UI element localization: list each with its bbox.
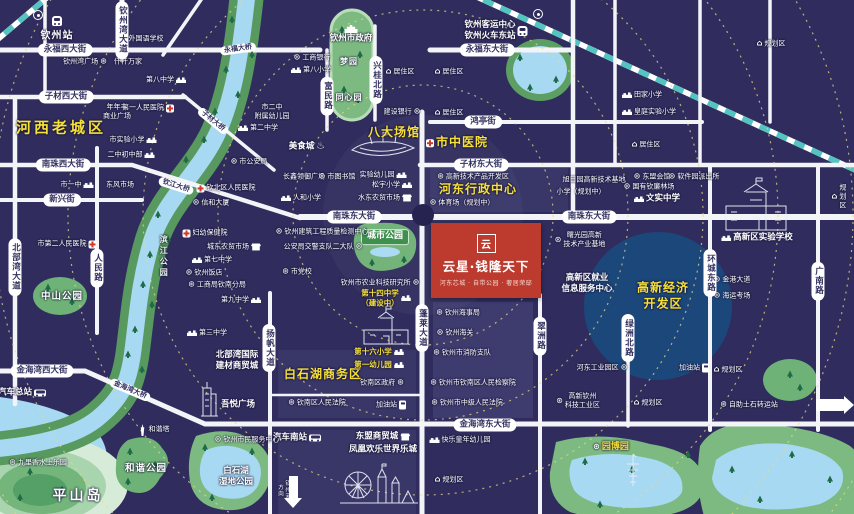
- hexie-tower-label: 和谐塔: [139, 424, 170, 436]
- house-icon: [832, 192, 838, 201]
- meishicheng-label: 美食城: [289, 141, 325, 152]
- star-icon: [193, 198, 200, 207]
- nanzhu-west-street-pill: 南珠西大街: [36, 158, 91, 171]
- house-icon: [386, 67, 392, 76]
- procuratorate-label-text: 钦州市钦南区人民检察院: [439, 378, 516, 387]
- yongfu-bridge-label-text: 永福大桥: [224, 43, 253, 56]
- house-icon: [634, 398, 640, 407]
- gaoxin-employment-center-label-text: 高新区就业 信息服务中心: [561, 273, 612, 295]
- shiyizhong-label-text: 市一中: [61, 180, 82, 189]
- qinzhou-station-label: 钦州站: [41, 30, 74, 43]
- no1-kindergarten-label-text: 第一幼儿园: [354, 360, 392, 370]
- gongshang-bank-label: 工商银行: [294, 53, 331, 62]
- agri-research-label: 钦州市农业科技研究所: [341, 278, 420, 287]
- cross-icon: [166, 104, 174, 112]
- qinlian-forest-farm-label: 国有钦廉林场: [624, 182, 675, 191]
- no2-peoples-hospital-label-text: 市第二人民医院: [38, 239, 87, 248]
- gongshang-bureau-label: 工商局钦南分局: [188, 280, 246, 289]
- star-icon: [397, 378, 404, 387]
- school-icon: [187, 330, 197, 336]
- qinzhou-east-station-label: 钦州客运中心 钦州火车东站: [464, 20, 527, 42]
- jinhaiwan-bridge-label-text: 金海湾大桥: [112, 379, 148, 401]
- guangnan-road-pill-text: 广南路: [812, 267, 823, 296]
- wenshi-middle-school-label-text: 文实中学: [646, 193, 680, 204]
- maternity-hospital-label-text: 妇幼保健院: [193, 228, 228, 237]
- hexi-old-town-label: 河西老城区: [16, 118, 106, 138]
- school-icon: [394, 349, 404, 355]
- qinjiang-bridge-label: 钦江大桥: [157, 176, 194, 196]
- qinnan-government-label-text: 钦南区政府: [360, 378, 395, 387]
- gas-station-label-b-text: 加油站: [679, 363, 700, 372]
- city-police-label: 市公安局: [231, 157, 268, 166]
- project-tagline: 河东芯城 · 自带公园 · 奢居荣邸: [440, 278, 532, 287]
- star-icon: [414, 107, 421, 116]
- school-icon: [402, 182, 412, 188]
- gas-station-label-a-text: 加油站: [376, 400, 397, 409]
- hedong-admin-center-label-text: 河东行政中心: [439, 182, 517, 198]
- star-icon: [556, 396, 563, 405]
- school-icon: [634, 196, 644, 202]
- no2-middle-school-label: 第二中学: [238, 123, 278, 132]
- yangfan-avenue-pill-text: 扬帆大道: [263, 329, 274, 367]
- star-icon: [437, 172, 444, 181]
- gaoxin-product-zone-label-text: 高新技术产品开发区: [446, 172, 509, 181]
- no3-middle-school-label-text: 第三中学: [199, 328, 227, 337]
- no14-middle-school-label: 第十四中学 （建设中）: [361, 288, 411, 308]
- star-icon: [593, 442, 600, 454]
- house-icon: [757, 39, 763, 48]
- qinnan-court-label: 钦南区人民法院: [288, 398, 346, 407]
- jinhaiwan-west-street-pill: 金海湾西大街: [10, 364, 73, 377]
- jingang-avenue-label: 金港大道: [714, 275, 751, 284]
- renhe-primary-label-text: 人和小学: [293, 193, 321, 202]
- no2-middle-kindergarten-label-text: 市二中 附属幼儿园: [255, 103, 290, 121]
- gov-building-icon-label: [345, 25, 358, 33]
- cross-icon: [197, 184, 205, 192]
- cross-icon: [89, 240, 97, 248]
- school-icon: [721, 235, 731, 241]
- maritime-bureau-label: 钦州海事局: [436, 308, 480, 317]
- zicai-east-street-pill: 子材东大街: [454, 158, 509, 171]
- yongfu-east-street-pill: 永福东大街: [460, 43, 515, 56]
- gaoxin-econ-zone-label-text: 高新经济 开发区: [637, 280, 689, 311]
- fire-brigade-label: 钦州市消防支队: [433, 348, 491, 357]
- fire-brigade-label-text: 钦州市消防支队: [442, 348, 491, 357]
- wuyue-plaza-label: 吾悦广场: [221, 399, 255, 410]
- chengshi-park-label-text: 城市公园: [367, 231, 403, 243]
- construction-quality-center-label-text: 钦州建筑工程质量检测中心: [284, 227, 368, 236]
- metro-icon-west-label: [33, 10, 43, 20]
- pingshan-island-label: 平山岛: [53, 487, 104, 505]
- guihuaqu-label-tr: 规划区: [832, 183, 847, 210]
- project-card: 云 云星·钱隆天下 河东芯城 · 自带公园 · 奢居荣邸: [431, 223, 541, 298]
- yongfu-bridge-label: 永福大桥: [220, 42, 257, 56]
- zicai-west-street-pill-text: 子材西大街: [45, 91, 88, 102]
- cuizhou-road-pill-text: 翠洲路: [534, 322, 545, 351]
- gas-icon: [399, 401, 406, 410]
- transfer-station-label-text: 自助土石转运站: [729, 400, 778, 409]
- zicai-west-street-pill: 子材西大街: [39, 90, 94, 103]
- baishihu-business-district-label-text: 白石湖商务区: [284, 367, 362, 383]
- hongting-street-pill: 鸿亭街: [464, 115, 502, 128]
- agri-research-label-text: 钦州市农业科技研究所: [341, 278, 411, 287]
- star-icon: [413, 278, 420, 287]
- songyu-primary-label-text: 松宇小学: [372, 180, 400, 189]
- xinggui-north-road-pill: 兴桂北路: [369, 56, 382, 104]
- fenghuang-world-label: 凤凰欢乐世界乐城: [349, 444, 417, 455]
- guangnan-road-pill: 广南路: [811, 262, 824, 301]
- star-icon: [188, 280, 195, 289]
- yuanboyuan-label: 园博园: [593, 442, 629, 454]
- hexi-old-town-label-text: 河西老城区: [16, 118, 106, 138]
- metro-icon: [33, 10, 43, 20]
- counties-direction-arrow-icon: [816, 399, 844, 411]
- intermediate-court-label: 钦州市中级人民法院: [431, 398, 503, 407]
- school-icon: [291, 67, 301, 73]
- meishicheng-label-text: 美食城: [289, 141, 315, 152]
- zhongshan-park-label-text: 中山公园: [41, 291, 83, 303]
- shi-shiyan-primary-label-text: 市实验小学: [110, 135, 145, 144]
- binjiang-park-label: 滨江公园: [158, 235, 168, 279]
- cuizhou-road-pill: 翠洲路: [533, 317, 546, 356]
- juzhuqu-label-tr: 居住区: [632, 140, 661, 149]
- badachangguan-label-text: 八大场馆: [368, 125, 420, 141]
- yongfu-west-street-pill-text: 永福西大街: [44, 44, 87, 55]
- jinhaiwan-east-street-pill: 金海湾东大街: [453, 418, 516, 431]
- erzhong-junior-label: 二中初中部: [108, 150, 155, 159]
- gas-station-label-a: 加油站: [376, 400, 406, 409]
- zicai-bridge-label: 子材大桥: [196, 106, 230, 136]
- star-icon: [288, 398, 295, 407]
- jinhaiwan-bridge-label: 金海湾大桥: [108, 377, 151, 402]
- school-icon: [281, 195, 291, 201]
- train-icon: [52, 16, 62, 26]
- qianwanjia-label: 仟仟万家: [114, 57, 142, 66]
- hexie-park-label-text: 和谐公园: [125, 463, 167, 475]
- xinxing-street-pill: 新兴街: [43, 193, 81, 206]
- nanzhu-east-street-pill-east-text: 南珠东大街: [568, 211, 611, 222]
- guihuaqu-label-b1: 规划区: [634, 398, 663, 407]
- shiyan-kindergarten-label-text: 实验幼儿园: [360, 170, 395, 179]
- guihuaqu-label-t-text: 规划区: [764, 39, 785, 48]
- market-icon: [251, 244, 261, 251]
- gaoxin-employment-center-label: 高新区就业 信息服务中心: [561, 273, 612, 295]
- penglai-avenue-pill-text: 蓬莱大道: [416, 309, 427, 347]
- school-icon: [147, 137, 157, 143]
- zicai-bridge-label-text: 子材大桥: [199, 109, 226, 134]
- hexie-tower-label-text: 和谐塔: [149, 425, 170, 434]
- school-icon: [430, 437, 440, 443]
- zicai-east-street-pill-text: 子材东大街: [460, 159, 503, 170]
- metro-icon-east-label: [533, 9, 543, 19]
- no8-primary-school-label-text: 第八小学: [303, 65, 331, 74]
- school-icon: [192, 257, 202, 263]
- qinzhou-hotel-label: 钦州饭店: [186, 268, 223, 277]
- dongmeng-huiguan-label-text: 东盟会馆: [642, 172, 670, 181]
- star-icon: [430, 378, 437, 387]
- tower-icon: [139, 424, 147, 436]
- nanzhu-east-street-pill-east: 南珠东大街: [562, 210, 617, 223]
- yongfu-east-street-pill-text: 永福东大街: [466, 44, 509, 55]
- chengdong-market-label-text: 城东农贸市场: [207, 242, 249, 251]
- gongshang-bank-label-text: 工商银行: [302, 53, 330, 62]
- fumin-road-pill-text: 富民路: [321, 82, 332, 111]
- customs-label-text: 钦州海关: [445, 328, 473, 337]
- qinzhou-government-label-text: 钦州市政府: [330, 33, 373, 44]
- renmin-road-pill-text: 人民路: [91, 254, 102, 283]
- kuaile-kindergarten-label-text: 快乐童年幼儿园: [442, 435, 491, 444]
- procuratorate-label: 钦州市钦南区人民检察院: [430, 378, 516, 387]
- tongxinyuan-label-text: 同心园: [336, 93, 363, 103]
- guihuaqu-label-t: 规划区: [757, 39, 786, 48]
- no9-middle-school-label-text: 第九中学: [221, 295, 249, 304]
- gaoxin-product-zone-label: 高新技术产品开发区: [437, 172, 509, 181]
- juzhuqu-label-tr-text: 居住区: [639, 140, 660, 149]
- huancheng-east-road-pill-text: 环城东路: [704, 254, 715, 292]
- primary-school-planned-label: 小学（规划中）: [557, 187, 606, 196]
- city-party-school-label-text: 市党校: [291, 267, 312, 276]
- transfer-station-label: 自助土石转运站: [720, 400, 778, 409]
- hongting-street-pill-text: 鸿亭街: [470, 116, 496, 127]
- school-icon: [176, 77, 186, 83]
- penglai-avenue-pill: 蓬莱大道: [415, 304, 428, 352]
- star-icon: [555, 235, 562, 244]
- mengyuan-label: 梦园: [340, 57, 358, 67]
- citizen-service-center-label-text: 钦州市民服务中心: [223, 435, 279, 444]
- lvzhou-north-road-pill: 绿洲北路: [621, 314, 634, 362]
- star-icon: [436, 308, 443, 317]
- dongfeng-market-label-text: 东风市场: [106, 180, 134, 189]
- guihuaqu-label-b2-text: 规划区: [721, 365, 742, 374]
- baishihu-wetland-park-label-text: 白石湖 湿地公园: [219, 466, 253, 488]
- qinzhou-government-label: 钦州市政府: [330, 33, 373, 44]
- beibuwan-intl-mall-label-text: 北部湾国际 建材商贸城: [216, 350, 259, 372]
- qinbei-hospital-label: 钦北区人民医院: [197, 183, 256, 192]
- star-icon: [282, 267, 289, 276]
- tianjia-primary-label-text: 田家小学: [634, 90, 662, 99]
- port-direction-arrow-icon: [289, 476, 298, 498]
- xuri-hitech-base-label-text: 旭日园高新技术基地: [563, 175, 626, 184]
- bus-main-station-label: 汽车总站: [0, 387, 46, 398]
- city-party-school-label: 市党校: [282, 267, 312, 276]
- qinnan-government-label: 钦南区政府: [360, 378, 404, 387]
- star-icon: [294, 53, 301, 62]
- xinhe-tower-label-text: 信和大厦: [201, 198, 229, 207]
- main-station-train-icon-label: [52, 16, 62, 26]
- nanzhu-west-street-pill-text: 南珠西大街: [42, 159, 85, 170]
- xinggui-north-road-pill-text: 兴桂北路: [370, 61, 381, 99]
- guihuaqu-label-bc: 规划区: [435, 475, 464, 484]
- customs-label: 钦州海关: [437, 328, 474, 337]
- shuidong-market-label: 水东农贸市场: [358, 193, 412, 202]
- star-icon: [634, 172, 641, 181]
- city-library-label-text: 市图书馆: [327, 172, 355, 181]
- jianshe-bank-label-text: 建设银行: [384, 107, 412, 116]
- baishihu-wetland-park-label: 白石湖 湿地公园: [219, 466, 253, 488]
- guihuaqu-label-b1-text: 规划区: [641, 398, 662, 407]
- dongmeng-mall-label: 东盟商贸城: [356, 431, 411, 442]
- wenshi-middle-school-label: 文实中学: [634, 193, 680, 204]
- gaoxin-experimental-school-label: 高新区实验学校: [721, 232, 793, 243]
- jianshe-bank-label: 建设银行: [384, 107, 421, 116]
- shizhong-hospital-label-text: 市中医院: [436, 135, 488, 151]
- xinxing-street-pill-text: 新兴街: [49, 194, 75, 205]
- huancheng-east-road-pill: 环城东路: [703, 249, 716, 297]
- project-logo-glyph: 云: [481, 236, 491, 251]
- songyu-primary-label: 松宇小学: [372, 180, 412, 189]
- jingang-avenue-label-text: 金港大道: [722, 275, 750, 284]
- no7-middle-school-label: 第七中学: [192, 255, 232, 264]
- citizen-service-center-label: 钦州市民服务中心: [215, 435, 280, 444]
- tongxinyuan-label: 同心园: [336, 93, 363, 103]
- qinzhou-east-station-label-text: 钦州客运中心 钦州火车东站: [464, 20, 515, 42]
- renmin-road-pill: 人民路: [90, 249, 103, 288]
- guihuaqu-label-bc-text: 规划区: [442, 475, 463, 484]
- mengyuan-label-text: 梦园: [340, 57, 358, 67]
- star-icon: [186, 268, 193, 277]
- no1-kindergarten-label: 第一幼儿园: [354, 360, 404, 370]
- qinlian-forest-farm-label-text: 国有钦廉林场: [632, 182, 674, 191]
- star-icon: [720, 400, 727, 409]
- qinzhouwan-plaza-label-text: 钦州湾广场: [63, 57, 98, 66]
- juzhuqu-label-b: 居住区: [435, 67, 464, 76]
- star-icon: [621, 363, 628, 372]
- qianwanjia-label-text: 仟仟万家: [114, 57, 142, 66]
- star-icon: [319, 172, 326, 181]
- binjiang-park-label-text: 滨江公园: [158, 235, 168, 279]
- no8-middle-school-label-text: 第八中学: [146, 75, 174, 84]
- juzhuqu-label-a: 居住区: [386, 67, 415, 76]
- school-icon: [251, 297, 261, 303]
- city-police-label-text: 市公安局: [239, 157, 267, 166]
- no8-primary-school-label: 第八小学: [291, 65, 331, 74]
- school-icon: [394, 362, 404, 368]
- beibuwan-avenue-pill: 北部湾大道: [8, 238, 21, 296]
- house-icon: [714, 365, 720, 374]
- ruanjianyuan-police-label: 软件园派出所: [669, 172, 720, 181]
- hedong-admin-center-label: 河东行政中心: [439, 182, 517, 198]
- yongfu-west-street-pill: 永福西大街: [38, 43, 93, 56]
- shi-shiyan-primary-label: 市实验小学: [110, 135, 157, 144]
- jinhaiwan-east-street-pill-text: 金海湾东大街: [459, 419, 510, 430]
- zhongshan-park-label: 中山公园: [41, 291, 83, 303]
- house-icon: [435, 475, 441, 484]
- erzhong-junior-label-text: 二中初中部: [108, 150, 143, 159]
- gaoxin-tech-zone-label-text: 高新钦州 科技工业区: [565, 392, 600, 410]
- kuaile-kindergarten-label: 快乐童年幼儿园: [430, 435, 491, 444]
- school-icon: [401, 295, 411, 301]
- star-icon: [624, 182, 631, 191]
- bus-icon: [34, 389, 46, 396]
- school-icon: [145, 152, 155, 158]
- school-icon: [84, 182, 94, 188]
- fumin-road-pill: 富民路: [320, 77, 333, 116]
- shiyan-kindergarten-label: 实验幼儿园: [360, 170, 407, 179]
- jiulixiang-waterpark-label: 九里香水上乐园: [9, 458, 67, 467]
- baishihu-business-district-label: 白石湖商务区: [284, 367, 362, 383]
- guihuaqu-label-tr-text: 规划区: [839, 183, 846, 210]
- guihuaqu-label-b2: 规划区: [714, 365, 743, 374]
- qinnan-court-label-text: 钦南区人民法院: [297, 398, 346, 407]
- construction-quality-center-label: 钦州建筑工程质量检测中心: [276, 227, 369, 236]
- lvzhou-north-road-pill-text: 绿洲北路: [622, 319, 633, 357]
- gaoxin-tech-zone-label: 高新钦州 科技工业区: [556, 392, 600, 410]
- school-icon: [622, 109, 632, 115]
- fenghuang-world-label-text: 凤凰欢乐世界乐城: [349, 444, 417, 455]
- dongmeng-huiguan-label: 东盟会馆: [634, 172, 671, 181]
- shuidong-market-label-text: 水东农贸市场: [358, 193, 400, 202]
- beibuwan-avenue-pill-text: 北部湾大道: [9, 243, 20, 291]
- star-icon: [100, 57, 107, 66]
- map-labels-layer: 永福西大街永福东大街子材西大街子材东大街南珠西大街南珠东大街南珠东大街新兴街鸿亭…: [0, 0, 854, 514]
- waiguoyu-school-label-text: 外国语学校: [129, 34, 164, 43]
- hedong-industrial-park-label-text: 河东工业园区: [577, 363, 619, 372]
- gongshang-bureau-label-text: 工商局钦南分局: [197, 280, 246, 289]
- stadium-planned-label-text: 体育场（规划中）: [438, 198, 494, 207]
- jinhaiwan-west-street-pill-text: 金海湾西大街: [16, 365, 67, 376]
- hedong-industrial-park-label: 河东工业园区: [577, 363, 628, 372]
- no16-primary-school-label: 第十六小学: [354, 347, 404, 357]
- food-icon: [316, 141, 325, 152]
- qinzhouwan-avenue-pill: 钦州湾大道: [115, 1, 128, 59]
- market-icon: [402, 195, 412, 202]
- gas-icon: [702, 364, 709, 373]
- star-icon: [215, 435, 222, 444]
- cross-icon: [183, 229, 191, 237]
- metro-icon: [533, 9, 543, 19]
- haiyun-exam-site-label-text: 海运考场: [722, 291, 750, 300]
- star-icon: [431, 398, 438, 407]
- yangfan-avenue-pill: 扬帆大道: [262, 324, 275, 372]
- no3-middle-school-label: 第三中学: [187, 328, 227, 337]
- school-icon: [397, 172, 407, 178]
- cross-icon: [426, 139, 434, 147]
- intermediate-court-label-text: 钦州市中级人民法院: [440, 398, 503, 407]
- badachangguan-label: 八大场馆: [368, 125, 420, 141]
- house-icon: [632, 140, 638, 149]
- gaoxin-econ-zone-label: 高新经济 开发区: [637, 280, 689, 311]
- tianjia-primary-label: 田家小学: [622, 90, 662, 99]
- juzhuqu-label-c: 居住区: [435, 108, 464, 117]
- huangting-primary-label: 皇庭实验小学: [622, 107, 676, 116]
- stadium-planned-label: 体育场（规划中）: [430, 198, 495, 207]
- star-icon: [231, 157, 238, 166]
- no2-peoples-hospital-label: 市第二人民医院: [38, 239, 97, 248]
- xinhe-tower-label: 信和大厦: [193, 198, 230, 207]
- school-icon: [622, 92, 632, 98]
- shuguang-industry-base-label: 曙光园高新 技术产业基地: [555, 231, 606, 249]
- no16-primary-school-label-text: 第十六小学: [354, 347, 392, 357]
- market-icon: [400, 433, 410, 440]
- niannianfeng-plaza-label: 年年丰 商业广场: [103, 103, 131, 121]
- qinbei-hospital-label-text: 钦北区人民医院: [207, 183, 256, 192]
- star-icon: [430, 198, 437, 207]
- shiyizhong-label: 市一中: [61, 180, 94, 189]
- no14-middle-school-label-text: 第十四中学 （建设中）: [361, 288, 399, 308]
- qinzhou-hotel-label-text: 钦州饭店: [194, 268, 222, 277]
- qinzhouwan-avenue-pill-text: 钦州湾大道: [116, 6, 127, 54]
- huangting-primary-label-text: 皇庭实验小学: [634, 107, 676, 116]
- xuri-hitech-base-label: 旭日园高新技术基地: [563, 175, 626, 184]
- gaoxin-experimental-school-label-text: 高新区实验学校: [733, 232, 793, 243]
- house-icon: [435, 67, 441, 76]
- maritime-bureau-label-text: 钦州海事局: [445, 308, 480, 317]
- qinzhou-location-map: 永福西大街永福东大街子材西大街子材东大街南珠西大街南珠东大街南珠东大街新兴街鸿亭…: [0, 0, 854, 514]
- train-icon: [518, 26, 528, 36]
- shizhong-hospital-label: 市中医院: [426, 135, 488, 151]
- star-icon: [437, 328, 444, 337]
- wuyue-plaza-label-text: 吾悦广场: [221, 399, 255, 410]
